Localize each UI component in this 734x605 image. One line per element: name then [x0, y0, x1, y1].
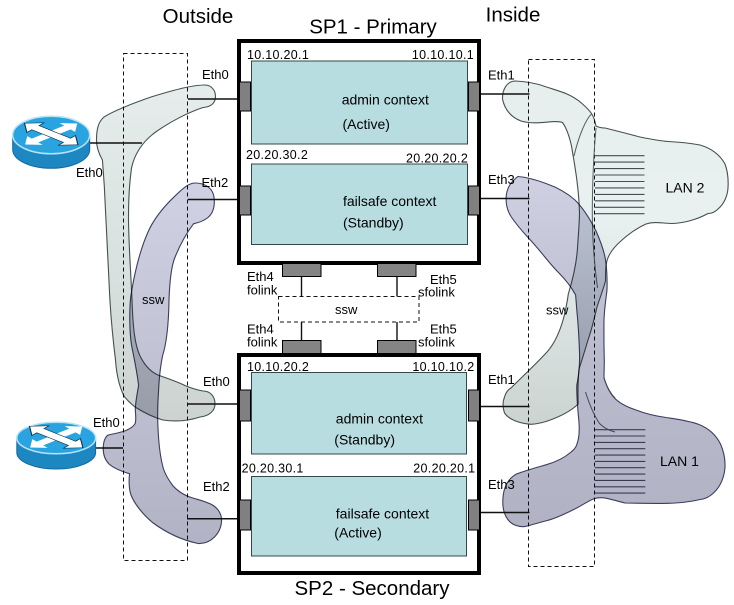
svg-text:20.20.30.1: 20.20.30.1	[242, 462, 304, 476]
svg-text:sfolink: sfolink	[418, 335, 455, 350]
svg-text:SP1 - Primary: SP1 - Primary	[309, 16, 437, 39]
svg-text:failsafe context: failsafe context	[343, 193, 436, 209]
svg-text:10.10.10.2: 10.10.10.2	[412, 360, 474, 374]
svg-text:10.10.10.1: 10.10.10.1	[412, 48, 474, 62]
svg-text:Eth2: Eth2	[203, 479, 230, 494]
svg-text:Eth3: Eth3	[488, 477, 515, 492]
svg-text:sfolink: sfolink	[418, 285, 455, 300]
svg-text:20.20.20.1: 20.20.20.1	[413, 462, 475, 476]
svg-text:10.10.20.1: 10.10.20.1	[247, 48, 309, 62]
svg-text:(Standby): (Standby)	[343, 215, 404, 231]
svg-text:(Standby): (Standby)	[334, 432, 395, 448]
svg-text:ssw: ssw	[546, 303, 569, 318]
svg-text:LAN 1: LAN 1	[660, 453, 699, 469]
svg-text:Eth2: Eth2	[202, 175, 229, 190]
svg-text:20.20.30.2: 20.20.30.2	[246, 148, 308, 162]
svg-text:ssw: ssw	[335, 302, 358, 317]
svg-text:Eth0: Eth0	[93, 415, 120, 430]
svg-text:10.10.20.2: 10.10.20.2	[247, 360, 309, 374]
svg-text:Eth1: Eth1	[488, 68, 515, 83]
svg-text:folink: folink	[247, 283, 278, 298]
svg-text:Eth0: Eth0	[202, 67, 229, 82]
svg-text:Eth0: Eth0	[76, 165, 103, 180]
svg-text:(Active): (Active)	[334, 525, 381, 541]
svg-text:SP2 - Secondary: SP2 - Secondary	[295, 577, 451, 600]
svg-text:Outside: Outside	[163, 5, 234, 28]
svg-text:ssw: ssw	[142, 292, 165, 307]
svg-text:admin context: admin context	[342, 92, 429, 108]
svg-text:Eth1: Eth1	[488, 372, 515, 387]
svg-text:(Active): (Active)	[343, 116, 390, 132]
svg-text:LAN 2: LAN 2	[666, 180, 705, 196]
svg-text:Inside: Inside	[486, 4, 541, 27]
svg-text:folink: folink	[247, 335, 278, 350]
svg-text:Eth0: Eth0	[203, 374, 230, 389]
svg-text:20.20.20.2: 20.20.20.2	[406, 152, 468, 166]
svg-text:Eth3: Eth3	[488, 172, 515, 187]
svg-text:failsafe context: failsafe context	[336, 506, 429, 522]
svg-text:admin context: admin context	[336, 411, 423, 427]
